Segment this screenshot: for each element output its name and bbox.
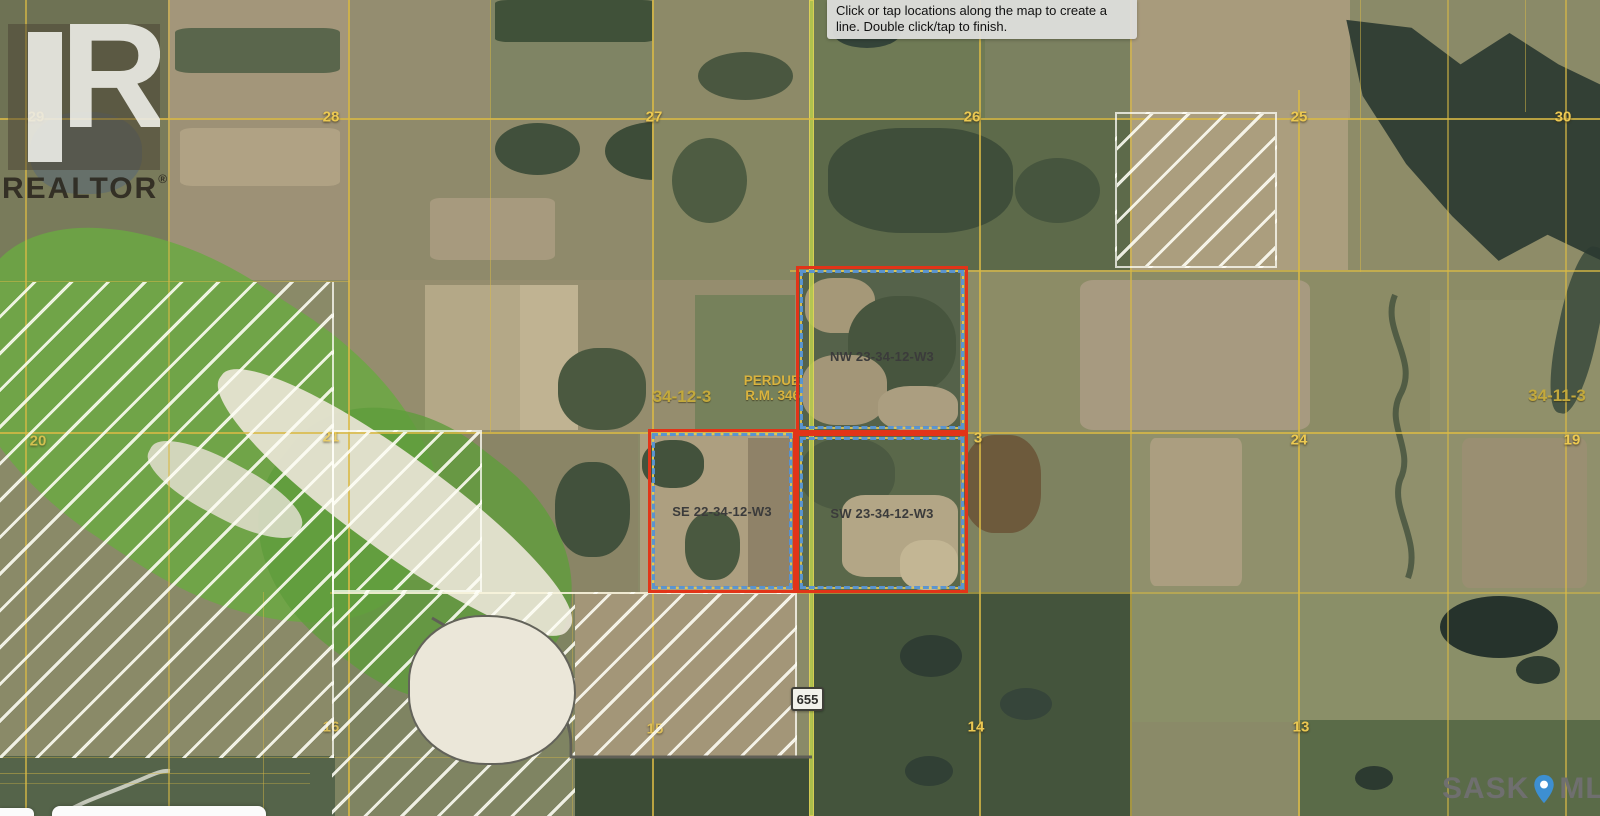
section-number: 28	[323, 109, 340, 126]
parcel-se-22-34-12-w3[interactable]: SE 22-34-12-W3	[648, 429, 796, 593]
section-number: 27	[646, 109, 663, 126]
highway-number: 655	[797, 692, 819, 707]
municipality-label: PERDUE R.M. 346	[744, 373, 800, 403]
realtor-logo: R REALTOR®	[8, 24, 164, 208]
section-number: 24	[1291, 432, 1308, 449]
watermark-mls: MLS	[1559, 772, 1600, 806]
instruction-tooltip: Click or tap locations along the map to …	[827, 0, 1137, 39]
realtor-wordmark: REALTOR	[2, 172, 158, 205]
township-range-label: 34-12-3	[653, 387, 712, 407]
registered-mark: ®	[158, 172, 169, 186]
map-pin-icon	[1533, 774, 1555, 804]
parcel-nw-23-34-12-w3[interactable]: NW 23-34-12-W3	[796, 266, 968, 433]
tooltip-line-1: Click or tap locations along the map to …	[836, 3, 1128, 19]
tooltip-line-2: line. Double click/tap to finish.	[836, 19, 1128, 35]
realtor-logo-r: R	[60, 24, 160, 150]
section-number: 19	[1564, 432, 1581, 449]
section-number: 14	[968, 719, 985, 736]
township-range-label: 34-11-3	[1528, 386, 1586, 406]
realtor-logo-mark: R	[8, 24, 160, 170]
municipality-name: PERDUE	[744, 373, 800, 388]
section-number: 26	[964, 109, 981, 126]
parcel-label: SE 22-34-12-W3	[672, 504, 772, 519]
section-number: 25	[1291, 109, 1308, 126]
section-number: 13	[1293, 719, 1310, 736]
section-number: 3	[974, 430, 982, 447]
sask-mls-watermark: SASK MLS ®	[1442, 772, 1600, 806]
municipality-rm-number: R.M. 346	[744, 388, 800, 403]
map-canvas[interactable]: 20211615 29282726253032419141334-12-334-…	[0, 0, 1600, 816]
parcel-label: SW 23-34-12-W3	[830, 506, 933, 521]
section-number: 30	[1555, 109, 1572, 126]
watermark-sask: SASK	[1442, 772, 1529, 806]
highway-shield-badge: 655	[791, 687, 824, 711]
realtor-logo-bar	[28, 32, 62, 162]
bottom-mini-control[interactable]	[0, 808, 34, 816]
realtor-logo-text: REALTOR®	[2, 172, 172, 206]
bottom-panel[interactable]	[52, 806, 266, 816]
parcel-sw-23-34-12-w3[interactable]: SW 23-34-12-W3	[796, 433, 968, 593]
parcel-label: NW 23-34-12-W3	[830, 349, 934, 364]
